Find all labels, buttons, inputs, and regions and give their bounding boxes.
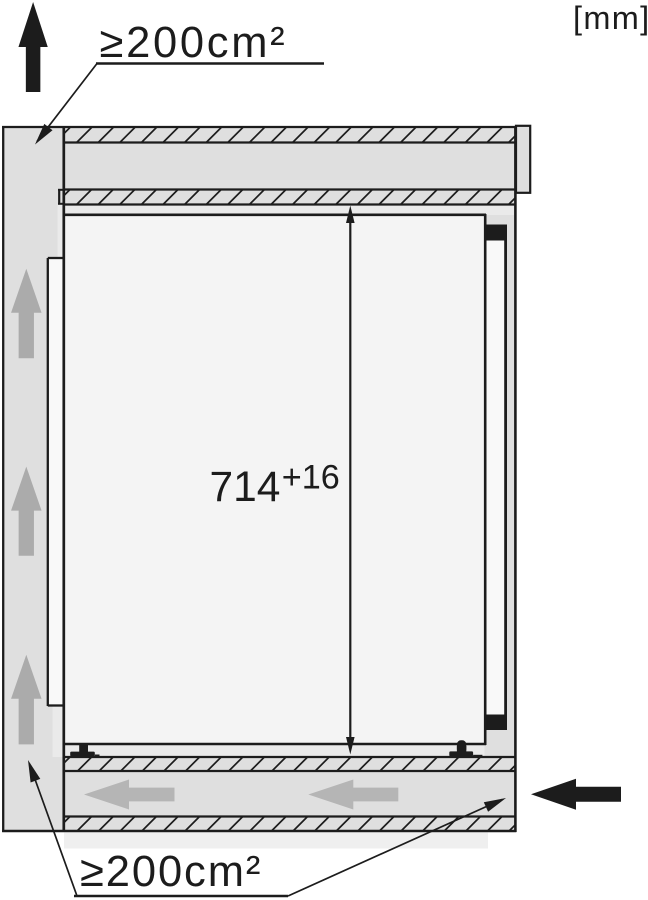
svg-text:714: 714 xyxy=(210,464,281,511)
svg-text:+16: +16 xyxy=(282,459,340,497)
svg-text:[mm]: [mm] xyxy=(573,0,648,36)
svg-text:≥200cm²: ≥200cm² xyxy=(100,19,288,67)
svg-text:≥200cm²: ≥200cm² xyxy=(80,848,262,896)
